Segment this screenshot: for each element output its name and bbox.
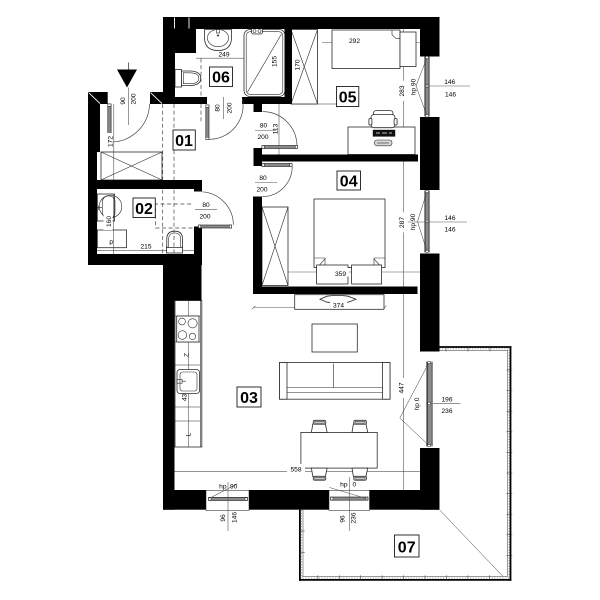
svg-text:hp: hp [340,481,348,488]
svg-text:249: 249 [218,52,229,59]
svg-text:90: 90 [230,484,238,491]
svg-text:146: 146 [444,79,455,86]
svg-text:04: 04 [340,174,358,191]
svg-text:200: 200 [257,134,268,141]
svg-text:200: 200 [199,214,210,221]
svg-text:Z: Z [183,353,190,357]
svg-text:236: 236 [441,408,452,415]
svg-text:196: 196 [441,396,452,403]
svg-text:03: 03 [240,390,258,407]
svg-text:200: 200 [226,102,233,113]
svg-text:236: 236 [350,512,357,523]
svg-text:hp 90: hp 90 [410,78,417,95]
svg-text:146: 146 [444,215,455,222]
svg-text:01: 01 [175,133,193,150]
svg-text:146: 146 [445,92,456,99]
svg-text:160: 160 [106,216,113,227]
svg-text:215: 215 [140,243,151,250]
svg-text:80: 80 [202,202,210,209]
svg-text:287: 287 [399,217,406,228]
svg-text:283: 283 [399,85,406,96]
svg-text:374: 374 [333,303,344,310]
svg-text:80: 80 [214,104,221,112]
svg-text:200: 200 [256,187,267,194]
svg-text:359: 359 [335,271,346,278]
svg-text:172: 172 [107,136,114,147]
svg-text:43: 43 [182,394,189,402]
svg-text:170: 170 [294,59,301,70]
svg-text:90: 90 [120,97,127,105]
svg-text:80: 80 [260,123,268,130]
svg-text:07: 07 [398,540,416,557]
svg-text:558: 558 [290,467,301,474]
svg-text:200: 200 [130,93,137,104]
svg-text:292: 292 [349,38,360,45]
svg-text:hp: hp [219,484,227,491]
svg-text:146: 146 [231,512,238,523]
svg-text:447: 447 [399,382,406,393]
svg-text:06: 06 [212,70,230,87]
svg-text:L: L [186,432,193,436]
svg-text:05: 05 [339,90,357,107]
svg-text:hp 90: hp 90 [410,213,417,230]
svg-text:146: 146 [444,227,455,234]
svg-text:80: 80 [259,175,267,182]
svg-text:96: 96 [220,514,227,522]
svg-text:113: 113 [272,123,279,134]
svg-text:0: 0 [353,481,357,488]
svg-text:02: 02 [135,201,153,218]
svg-text:155: 155 [271,56,278,67]
svg-text:hp 0: hp 0 [414,397,421,410]
svg-text:96: 96 [339,515,346,523]
